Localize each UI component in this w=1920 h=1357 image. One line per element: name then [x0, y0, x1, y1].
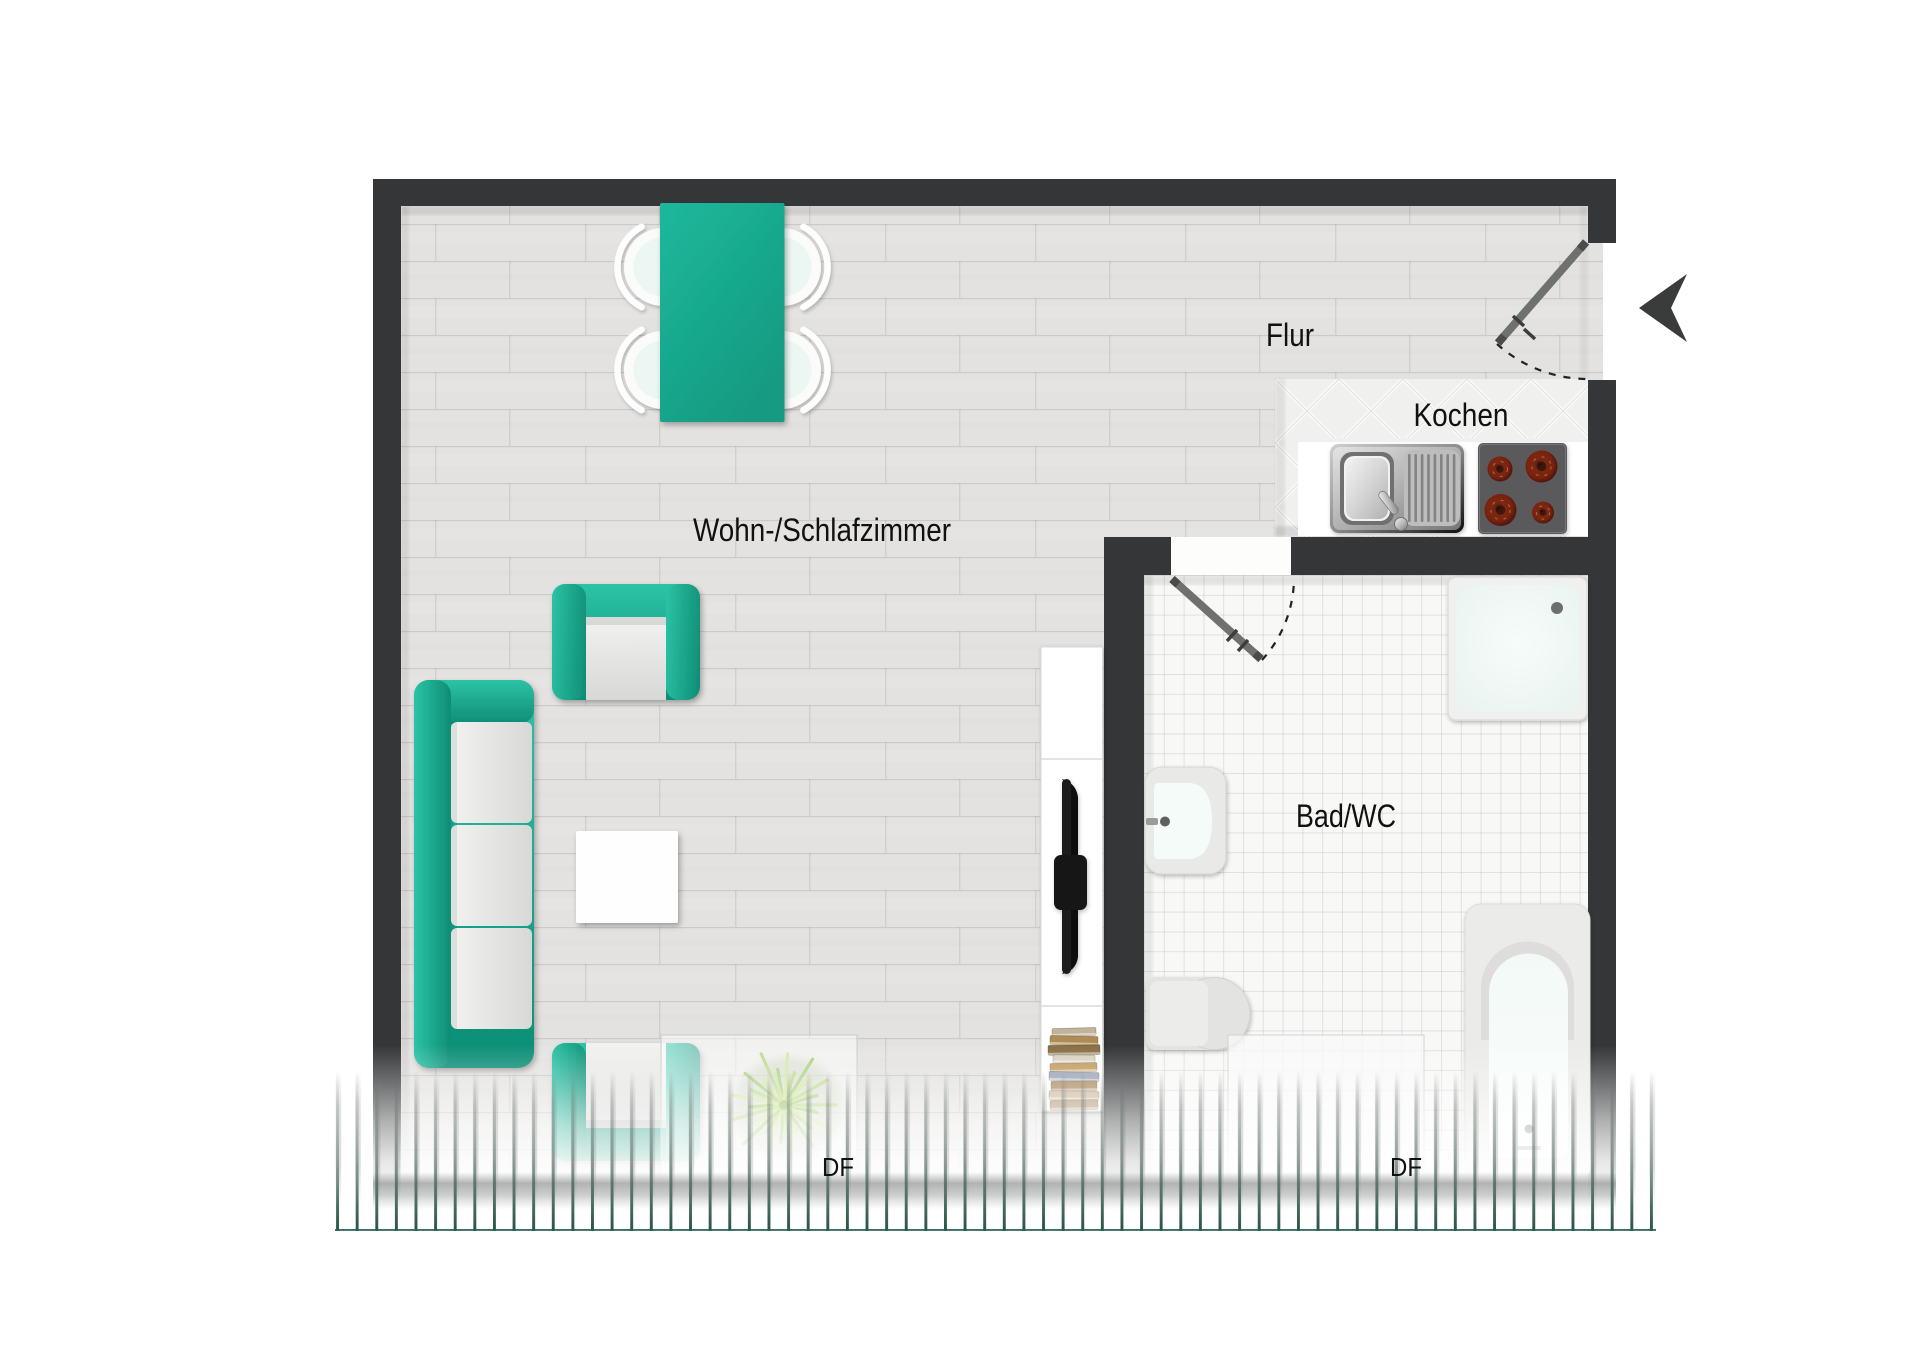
svg-text:Flur: Flur: [1266, 317, 1314, 353]
svg-text:Bad/WC: Bad/WC: [1296, 798, 1396, 834]
svg-text:Wohn-/Schlafzimmer: Wohn-/Schlafzimmer: [693, 512, 951, 548]
svg-text:DF: DF: [822, 1152, 854, 1182]
svg-text:Kochen: Kochen: [1414, 397, 1509, 433]
svg-text:DF: DF: [1390, 1152, 1422, 1182]
